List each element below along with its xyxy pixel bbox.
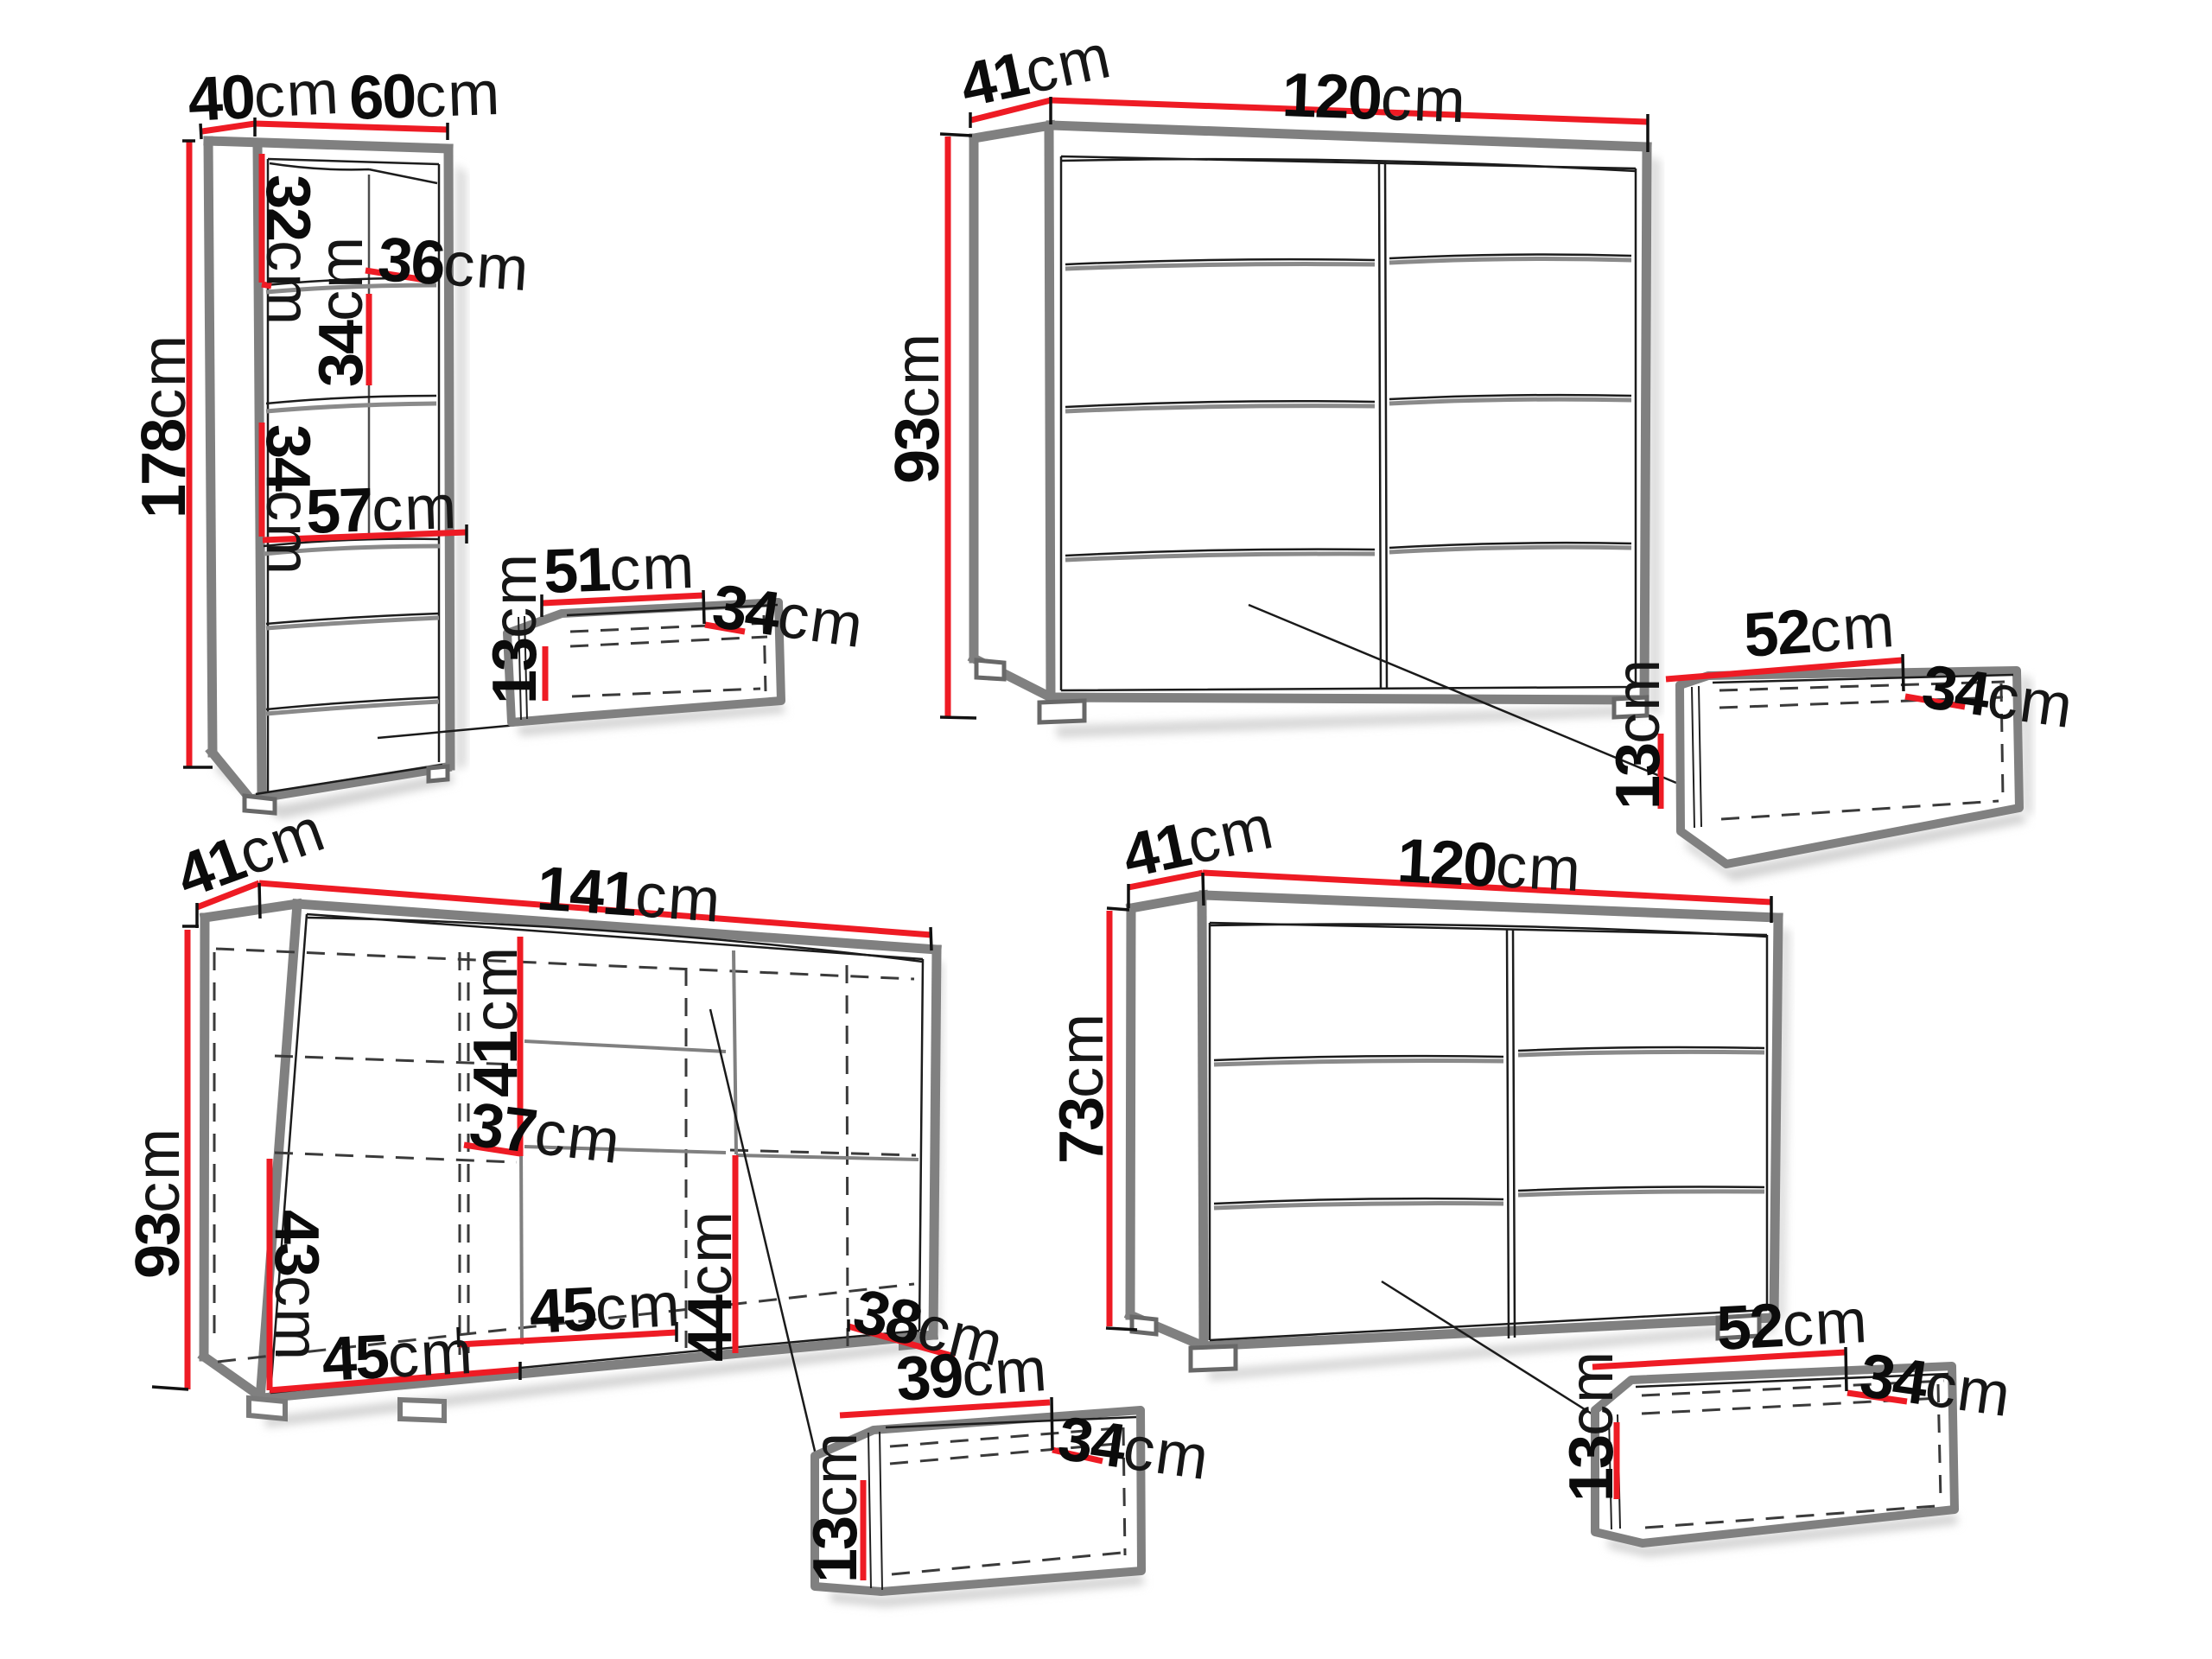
svg-text:45cm: 45cm [321, 1318, 476, 1395]
svg-text:13cm: 13cm [801, 1431, 870, 1583]
svg-text:52cm: 52cm [1742, 591, 1898, 671]
svg-text:36cm: 36cm [376, 225, 532, 304]
svg-text:13cm: 13cm [1604, 658, 1673, 810]
svg-text:120cm: 120cm [1281, 60, 1468, 136]
svg-text:57cm: 57cm [305, 473, 460, 547]
svg-text:41cm: 41cm [461, 945, 531, 1097]
svg-text:178cm: 178cm [130, 334, 199, 518]
svg-text:73cm: 73cm [1047, 1012, 1116, 1164]
svg-text:52cm: 52cm [1715, 1287, 1871, 1363]
svg-text:44cm: 44cm [676, 1210, 745, 1362]
svg-text:40cm: 40cm [187, 58, 342, 135]
svg-text:34cm: 34cm [307, 235, 376, 387]
svg-text:51cm: 51cm [543, 532, 697, 607]
svg-text:141cm: 141cm [535, 854, 724, 936]
svg-text:45cm: 45cm [528, 1270, 683, 1347]
svg-text:39cm: 39cm [894, 1335, 1051, 1414]
svg-text:60cm: 60cm [348, 59, 503, 133]
svg-text:13cm: 13cm [480, 552, 550, 704]
svg-text:120cm: 120cm [1395, 826, 1584, 905]
svg-text:93cm: 93cm [124, 1127, 193, 1279]
svg-text:93cm: 93cm [883, 332, 952, 484]
svg-text:13cm: 13cm [1557, 1350, 1626, 1502]
